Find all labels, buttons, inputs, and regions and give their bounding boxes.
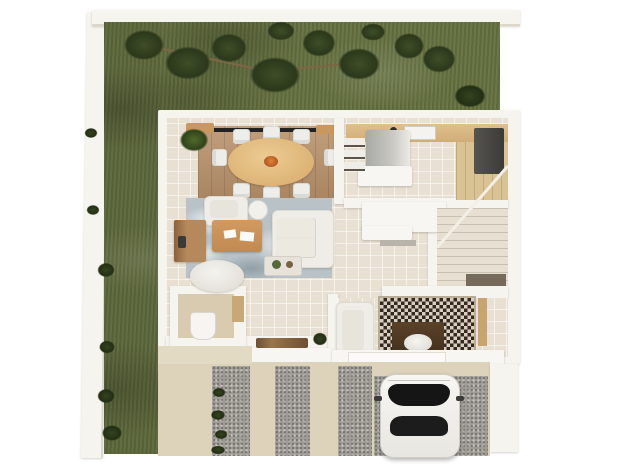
wall-shelf: [344, 150, 365, 159]
table-plant-decor: [272, 260, 281, 269]
round-side-table: [248, 200, 268, 220]
desk: [212, 220, 262, 252]
sideboard-decor: [178, 236, 186, 248]
tree: [356, 20, 390, 44]
hall-bench: [256, 338, 308, 348]
wall-shrub: [94, 386, 118, 406]
bar-base-shadow: [380, 240, 416, 246]
driveway-plant: [212, 428, 230, 441]
car-hood-line: [388, 380, 450, 381]
gravel-stripe: [275, 366, 310, 456]
tree: [330, 42, 388, 86]
wall-shrub: [84, 203, 102, 217]
garden-shrub: [448, 80, 492, 112]
door-threshold: [232, 296, 244, 322]
car-mirror: [456, 396, 464, 401]
driveway-plant: [210, 386, 228, 399]
kitchen-worktop: [358, 166, 412, 186]
wall-shrub: [94, 260, 118, 280]
dining-chair: [212, 149, 227, 166]
hall-plant: [310, 330, 330, 348]
dining-chair: [293, 183, 310, 198]
dining-plant: [174, 124, 214, 156]
wall-shrub: [98, 422, 126, 444]
wall-shrub: [96, 338, 118, 356]
desk-paper: [224, 229, 237, 239]
under-stair-nook: [466, 274, 506, 286]
tree: [262, 18, 300, 44]
wall-shelf: [344, 138, 365, 147]
gravel-stripe: [338, 366, 372, 456]
appliance: [474, 128, 504, 174]
sofa-side-table: [264, 256, 302, 276]
walkway: [158, 346, 252, 364]
car-rear-window: [390, 416, 448, 436]
car-mirror: [374, 396, 382, 401]
sofa-cushions: [276, 218, 316, 258]
wall-shelf: [344, 162, 365, 171]
foyer-armchair-seat: [342, 310, 364, 350]
ottoman: [190, 260, 244, 292]
wall-dining-kitchen: [334, 118, 344, 204]
wall-shrub: [82, 126, 100, 140]
driveway-plant: [208, 408, 228, 422]
floor-plan-render: [0, 0, 627, 476]
table-plant-decor: [286, 261, 293, 268]
table-centerpiece: [264, 156, 278, 167]
carport-wall-right: [490, 364, 518, 452]
driveway-plant: [208, 444, 228, 456]
armchair-seat: [210, 200, 238, 218]
toilet: [190, 312, 216, 340]
foyer-threshold: [478, 298, 487, 346]
car-windshield: [388, 384, 450, 406]
desk-paper: [240, 231, 255, 241]
tree: [416, 40, 462, 78]
bar-counter-ledge: [362, 226, 412, 240]
kitchen-island: [366, 130, 410, 170]
